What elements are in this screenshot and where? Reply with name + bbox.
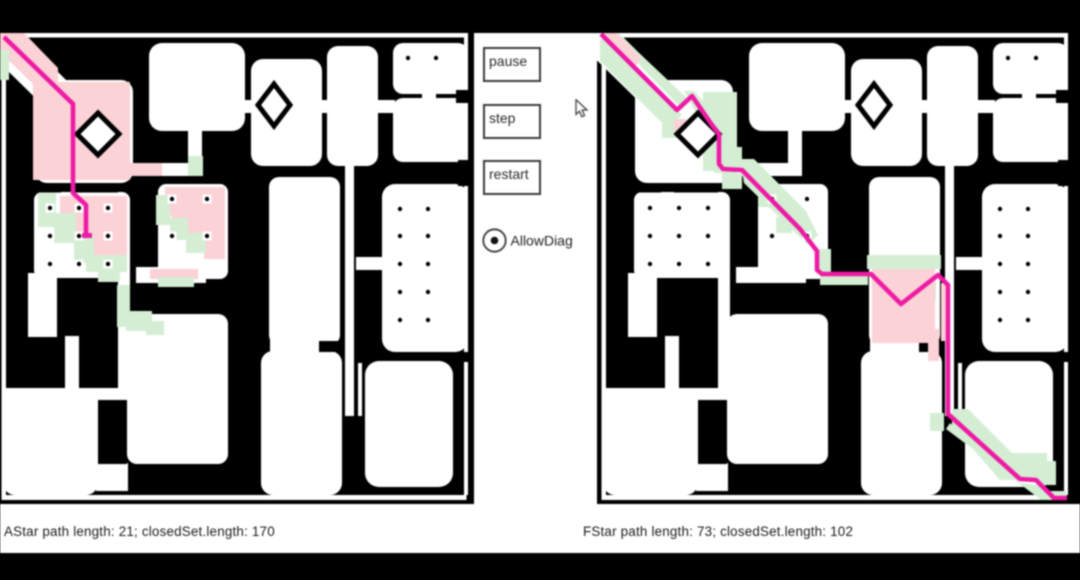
svg-text:AllowDiag: AllowDiag (511, 233, 573, 249)
